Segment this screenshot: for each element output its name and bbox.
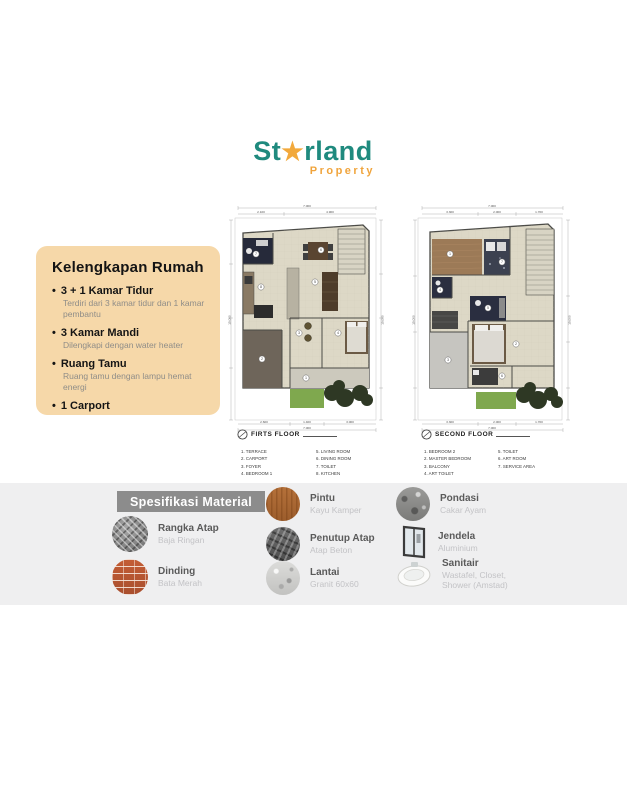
material-item: Rangka Atap Baja Ringan — [112, 516, 242, 552]
first-floor-header: FIRTS FLOOR — [237, 429, 337, 440]
logo: St★rland Property — [246, 138, 380, 177]
svg-text:2: 2 — [261, 357, 263, 361]
svg-text:1: 1 — [305, 376, 307, 380]
svg-text:15.000: 15.000 — [228, 315, 231, 325]
wood-icon — [266, 487, 300, 521]
material-item: Jendela Aluminium — [400, 524, 522, 560]
feature-item: 3 Kamar Mandi Dilengkapi dengan water he… — [52, 327, 210, 351]
svg-text:3.000: 3.000 — [346, 420, 354, 424]
second-floor-legend-col1: 1. BEDROOM 2 2. MASTER BEDROOM 3. BALCON… — [424, 448, 471, 477]
material-item: Sanitair Wastafel, Closet, Shower (Amsta… — [396, 558, 526, 590]
svg-text:3: 3 — [447, 358, 449, 362]
garden-area — [290, 389, 324, 408]
window-icon — [400, 524, 428, 560]
feature-item: Ruang Tamu Ruang tamu dengan lampu hemat… — [52, 358, 210, 393]
svg-text:5: 5 — [487, 306, 489, 310]
master-bed — [472, 324, 506, 364]
planter — [305, 323, 312, 330]
features-title: Kelengkapan Rumah — [52, 259, 210, 276]
bed-bedroom1 — [345, 321, 368, 354]
svg-text:5: 5 — [314, 280, 316, 284]
svg-text:2.600: 2.600 — [260, 420, 268, 424]
feature-item: 3 + 1 Kamar Tidur Terdiri dari 3 kamar t… — [52, 285, 210, 320]
svg-text:7.000: 7.000 — [488, 204, 496, 208]
svg-text:4.900: 4.900 — [326, 210, 334, 214]
material-item: Pintu Kayu Kamper — [266, 487, 394, 521]
svg-text:6: 6 — [320, 248, 322, 252]
svg-text:7.000: 7.000 — [303, 204, 311, 208]
first-floor-legend-col2: 5. LIVING ROOM 6. DINING ROOM 7. TOILET … — [316, 448, 351, 477]
roof-tile-icon — [266, 527, 300, 561]
first-floor-title: FIRTS FLOOR — [251, 431, 300, 438]
logo-subtitle: Property — [246, 165, 380, 177]
sink-icon — [396, 558, 432, 590]
svg-text:4: 4 — [439, 288, 441, 292]
svg-text:3.300: 3.300 — [446, 420, 454, 424]
second-floor-title: SECOND FLOOR — [435, 431, 493, 438]
foundation-icon — [396, 487, 430, 521]
material-item: Lantai Granit 60x60 — [266, 561, 394, 595]
second-floor-plan: 7.000 3.300 2.000 1.700 15.000 15.000 3.… — [412, 202, 578, 434]
north-icon — [237, 429, 248, 440]
tv-cabinet — [254, 305, 273, 318]
features-card: Kelengkapan Rumah 3 + 1 Kamar Tidur Terd… — [36, 246, 220, 415]
first-floor-plan: 7.000 2.100 4.900 15.000 15.000 2.600 1.… — [228, 202, 388, 434]
art-room-bed — [472, 368, 498, 385]
bedroom2-area — [432, 239, 482, 275]
red-brick-icon — [112, 559, 148, 595]
service-area — [484, 239, 510, 275]
garden-area — [476, 392, 516, 409]
header-underline — [303, 436, 337, 437]
svg-text:2.000: 2.000 — [493, 420, 501, 424]
partition-cabinet — [287, 268, 299, 319]
star-icon: ★ — [281, 138, 304, 166]
material-item: Pondasi Cakar Ayam — [396, 487, 524, 521]
steel-frame-icon — [112, 516, 148, 552]
svg-text:3.300: 3.300 — [446, 210, 454, 214]
svg-text:8: 8 — [260, 285, 262, 289]
sofa — [322, 272, 338, 311]
svg-text:2: 2 — [515, 342, 517, 346]
svg-text:4: 4 — [337, 331, 339, 335]
second-floor-legend-col2: 5. TOILET 6. ART ROOM 7. SERVICE AREA — [498, 448, 535, 470]
svg-text:15.000: 15.000 — [412, 315, 415, 325]
first-floor-legend-col1: 1. TERRACE 2. CARPORT 3. FOYER 4. BEDROO… — [241, 448, 272, 477]
svg-text:2.100: 2.100 — [257, 210, 265, 214]
north-icon — [421, 429, 432, 440]
granite-icon — [266, 561, 300, 595]
svg-text:7: 7 — [501, 260, 503, 264]
stairs-area — [338, 229, 365, 274]
flyer-page: St★rland Property Kelengkapan Rumah 3 + … — [0, 0, 627, 804]
second-floor-header: SECOND FLOOR — [421, 429, 530, 440]
feature-item: 1 Carport — [52, 400, 210, 412]
svg-text:15.000: 15.000 — [568, 315, 572, 325]
svg-text:3: 3 — [298, 331, 300, 335]
svg-text:2.000: 2.000 — [493, 210, 501, 214]
terrace-area — [290, 368, 369, 388]
svg-text:15.000: 15.000 — [381, 315, 385, 325]
logo-wordmark: St★rland — [253, 136, 372, 166]
svg-text:6: 6 — [501, 374, 503, 378]
svg-text:1.700: 1.700 — [535, 210, 543, 214]
materials-title: Spesifikasi Material — [117, 491, 265, 512]
material-item: Dinding Bata Merah — [112, 559, 242, 595]
material-item: Penutup Atap Atap Beton — [266, 527, 394, 561]
svg-text:1: 1 — [449, 252, 451, 256]
svg-text:7: 7 — [255, 252, 257, 256]
header-underline — [496, 436, 530, 437]
svg-text:1.400: 1.400 — [303, 420, 311, 424]
svg-text:1.700: 1.700 — [535, 420, 543, 424]
planter — [305, 335, 312, 342]
wardrobe — [432, 311, 458, 329]
